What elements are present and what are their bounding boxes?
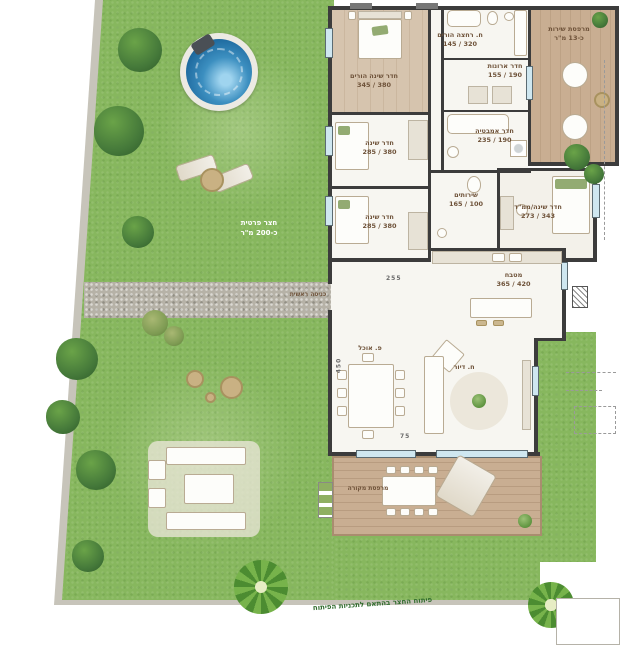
room-label-kitchen: מטבח 420 / 365	[486, 271, 541, 289]
wall	[615, 6, 619, 166]
dimension-dining-width: 255	[386, 275, 402, 282]
kitchen-sink-icon	[492, 253, 505, 262]
dimension-dining-depth: 450	[335, 358, 342, 374]
room-name: חדר שינה/ממ"ד	[502, 203, 574, 212]
room-name: מרפסת מקורה	[342, 485, 394, 493]
window	[561, 262, 568, 290]
room-name: מטבח	[486, 271, 541, 280]
tree-icon	[56, 338, 98, 380]
room-dims: 420 / 365	[486, 280, 541, 289]
wardrobe	[408, 212, 428, 250]
boundary-dashed-line	[604, 60, 605, 240]
room-label-living: ח. דיור	[444, 363, 484, 372]
rattan-chair	[562, 114, 588, 140]
sofa-icon	[424, 356, 444, 434]
closet-unit	[468, 86, 488, 104]
floor-plan-canvas: כניסה ראשית חצר פרטית כ-200 מ"ר	[0, 0, 621, 646]
entrance-label-text: כניסה ראשית	[286, 291, 330, 299]
wall	[441, 110, 528, 112]
wall	[431, 170, 531, 173]
bistro-table	[220, 376, 243, 399]
terrace-chair	[386, 466, 396, 474]
outdoor-sofa	[166, 447, 246, 465]
bed-pillow	[338, 126, 350, 135]
bed-pillow	[338, 200, 350, 209]
tree-icon	[94, 106, 144, 156]
room-label-master-bath: ח. רחצה הורים 320 / 145	[425, 31, 495, 49]
wall	[328, 310, 332, 456]
terrace-chair	[414, 466, 424, 474]
entry-path	[84, 282, 346, 318]
room-dims: 320 / 145	[425, 40, 495, 49]
bathtub-icon	[447, 10, 481, 27]
bistro-stool	[205, 392, 216, 403]
room-name: חדר אמבטיה	[462, 127, 527, 136]
wall	[534, 338, 566, 341]
neighbor-structure	[556, 598, 620, 645]
wall	[534, 338, 538, 456]
tree-icon	[118, 28, 162, 72]
tree-icon	[46, 400, 80, 434]
yard-size-label: חצר פרטית כ-200 מ"ר	[224, 219, 294, 239]
window	[325, 196, 333, 226]
olive-tree-icon	[164, 326, 184, 346]
room-label-bedroom-2: חדר שינה 380 / 285	[352, 139, 407, 157]
kitchen-sink-icon	[509, 253, 522, 262]
room-label-covered-terrace: מרפסת מקורה	[342, 485, 394, 493]
tree-icon	[72, 540, 104, 572]
terrace-sliding-door	[436, 450, 528, 458]
room-label-closet: חדר ארונות 190 / 155	[475, 62, 535, 80]
room-dims: 380 / 285	[352, 222, 407, 231]
wall	[328, 262, 332, 284]
room-name: חדר ארונות	[475, 62, 535, 71]
bed-pillow	[555, 179, 587, 189]
dining-chair	[362, 430, 374, 439]
room-name: חדר שינה הורים	[344, 72, 404, 81]
wall	[330, 112, 430, 115]
room-name: ח. דיור	[444, 363, 484, 372]
terrace-chair	[400, 466, 410, 474]
nightstand	[404, 11, 412, 20]
outdoor-coffee-table	[184, 474, 234, 504]
room-size: כ-13 מ"ר	[540, 34, 598, 43]
sink-icon	[447, 146, 459, 158]
room-label-bedroom-3: חדר שינה 380 / 285	[352, 213, 407, 231]
dimension-terrace-offset: 75	[400, 433, 410, 440]
plant-icon	[518, 514, 532, 528]
room-label-bathroom: חדר אמבטיה 190 / 235	[462, 127, 527, 145]
room-name: ח. רחצה הורים	[425, 31, 495, 40]
room-label-mamad: חדר שינה/ממ"ד 343 / 273	[502, 203, 574, 221]
window	[532, 366, 539, 396]
boundary-dashed-line	[566, 390, 602, 391]
room-label-toilet: שירותים 100 / 165	[440, 191, 492, 209]
nightstand	[348, 11, 356, 20]
tv-unit	[522, 360, 531, 430]
dining-chair	[337, 406, 347, 416]
room-label-service-balcony: מרפסת שירות כ-13 מ"ר	[540, 25, 598, 43]
room-dims: 100 / 165	[440, 200, 492, 209]
room-name: חדר שינה	[352, 139, 407, 148]
kitchen-island	[470, 298, 532, 318]
tree-icon	[122, 216, 154, 248]
room-name: חדר שינה	[352, 213, 407, 222]
neighbor-outline	[574, 406, 616, 434]
wall	[441, 58, 528, 60]
tree-icon	[76, 450, 116, 490]
boundary-dashed-line	[566, 372, 616, 373]
sink-icon	[437, 228, 447, 238]
outdoor-armchair	[148, 488, 166, 508]
tree-icon	[592, 12, 608, 28]
roof-vent	[350, 3, 372, 9]
dining-table	[348, 364, 394, 428]
planter-box	[318, 482, 333, 518]
terrace-chair	[386, 508, 396, 516]
dining-chair	[395, 406, 405, 416]
sink-icon	[504, 12, 514, 21]
balcony-table	[594, 92, 610, 108]
room-name: פ. אוכל	[350, 344, 390, 353]
closet-unit	[492, 86, 512, 104]
bar-stool	[476, 320, 487, 326]
bistro-table	[186, 370, 204, 388]
outdoor-armchair	[148, 460, 166, 480]
room-dims: 380 / 345	[344, 81, 404, 90]
garden-lawn-bottom	[334, 562, 540, 600]
yard-label-line1: חצר פרטית	[224, 219, 294, 229]
terrace-chair	[414, 508, 424, 516]
terrace-chair	[400, 508, 410, 516]
dining-chair	[362, 353, 374, 362]
room-label-dining: פ. אוכל	[350, 344, 390, 353]
roof-vent	[416, 3, 438, 9]
tree-icon	[584, 164, 604, 184]
room-dims: 190 / 235	[462, 136, 527, 145]
bed-headboard	[358, 11, 402, 19]
room-label-master-bedroom: חדר שינה הורים 380 / 345	[344, 72, 404, 90]
shower-icon	[514, 10, 527, 56]
entrance-label: כניסה ראשית	[286, 291, 330, 299]
wall	[330, 258, 430, 262]
room-dims: 380 / 285	[352, 148, 407, 157]
rattan-chair	[562, 62, 588, 88]
outdoor-sofa	[166, 512, 246, 530]
garden-side-table	[200, 168, 224, 192]
yard-label-line2: כ-200 מ"ר	[224, 229, 294, 239]
room-name: מרפסת שירות	[540, 25, 598, 34]
plant-icon	[472, 394, 486, 408]
dining-chair	[337, 388, 347, 398]
room-dims: 190 / 155	[475, 71, 535, 80]
window	[325, 126, 333, 156]
window	[592, 184, 600, 218]
dining-chair	[395, 388, 405, 398]
terrace-chair	[428, 508, 438, 516]
room-dims: 343 / 273	[502, 212, 574, 221]
bar-stool	[493, 320, 504, 326]
wall	[330, 186, 430, 189]
room-name: שירותים	[440, 191, 492, 200]
terrace-chair	[428, 466, 438, 474]
wardrobe	[408, 120, 428, 160]
window	[325, 28, 333, 58]
shaft-icon	[572, 286, 588, 308]
toilet-icon	[487, 11, 498, 25]
dining-chair	[395, 370, 405, 380]
terrace-sliding-door	[356, 450, 416, 458]
